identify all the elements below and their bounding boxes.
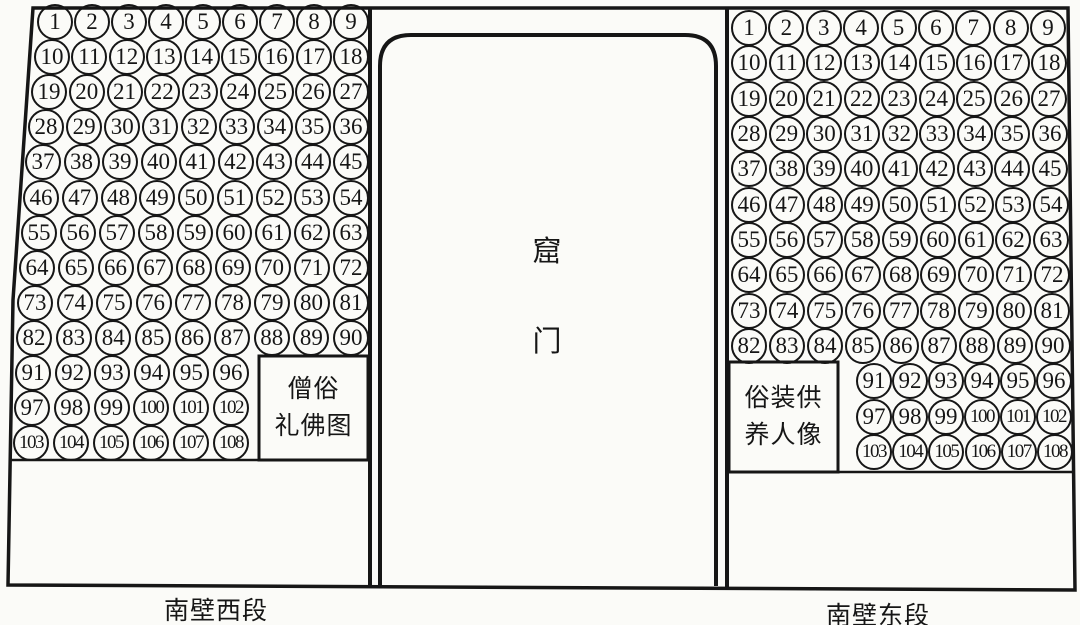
west-inset-label: 僧俗 礼佛图	[261, 357, 366, 459]
east-inset-label-line1: 俗装供	[744, 380, 822, 417]
cave-wall-diagram: 1234567891011121314151617181920212223242…	[0, 0, 1080, 625]
cave-door-frame	[380, 35, 716, 586]
outer-wall-border	[8, 8, 1075, 590]
west-wall-caption: 南壁西段	[116, 591, 316, 625]
door-label-bottom: 门	[380, 318, 716, 360]
diagram-outline	[0, 0, 1080, 625]
east-inset-label: 俗装供 养人像	[731, 363, 836, 471]
door-label-top: 窟	[380, 228, 716, 270]
east-inset-label-line2: 养人像	[744, 417, 822, 454]
west-inset-label-line2: 礼佛图	[274, 408, 352, 445]
east-wall-caption: 南壁东段	[778, 596, 978, 625]
west-inset-label-line1: 僧俗	[287, 371, 339, 408]
